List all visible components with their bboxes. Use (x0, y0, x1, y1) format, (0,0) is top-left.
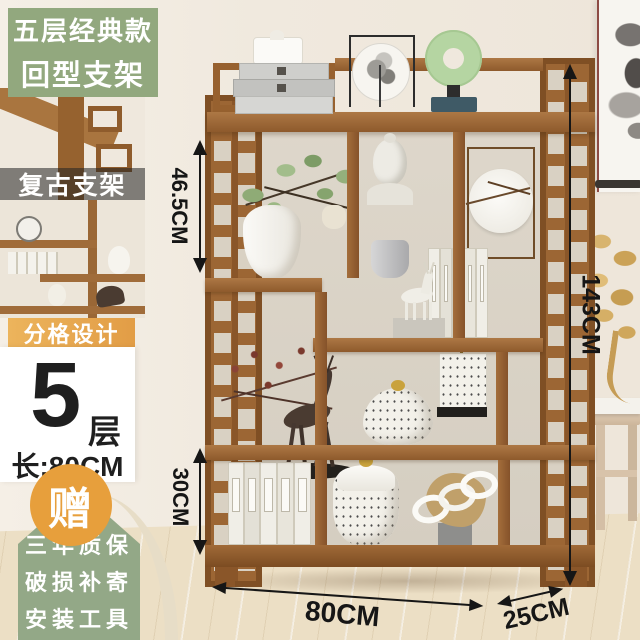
shelf-divider (315, 292, 327, 445)
storage-box (235, 96, 333, 114)
top-promo-badge: 五层经典款 回型支架 (8, 8, 158, 97)
mini-board (0, 240, 97, 248)
dim-line (199, 152, 201, 260)
dim-label-total-height: 143CM (576, 269, 605, 361)
jade-ring-hole (443, 48, 464, 69)
shelf-divider (498, 460, 510, 545)
file-box-row (228, 462, 312, 545)
small-cream-vase (322, 205, 346, 229)
deer-leg (429, 302, 432, 320)
display-shelf (205, 55, 595, 587)
dim-label-lower-section: 30CM (167, 459, 193, 535)
arrowhead-down (563, 571, 577, 586)
dim-label-width: 80CM (304, 595, 377, 633)
gift-circle-badge: 赠 (30, 464, 112, 546)
buddha-shoulders (367, 183, 413, 205)
shelf-divider (315, 460, 327, 545)
white-textured-vase (243, 205, 301, 278)
gift-benefit: 安装工具 (25, 602, 133, 634)
mini-board (40, 274, 145, 282)
shelf-board (205, 445, 595, 460)
mini-vase (48, 284, 66, 306)
tissue-box (253, 37, 303, 65)
jade-ring-base (431, 97, 477, 112)
file-box (294, 462, 311, 545)
retro-label-strip: 复古支架 (0, 168, 145, 200)
buddha-head (373, 139, 407, 185)
gift-benefit: 破损补寄 (25, 565, 133, 597)
fan-tassel (379, 65, 381, 107)
dim-line (199, 460, 201, 542)
mini-books (8, 252, 58, 274)
file-box (260, 462, 277, 545)
file-box (228, 462, 244, 545)
mini-deer (94, 284, 125, 309)
shelf-top-board (207, 112, 595, 132)
fan-circle (352, 43, 410, 101)
deer-plinth (393, 318, 445, 338)
lattice-hole (88, 106, 122, 132)
box-base (437, 407, 487, 417)
gift-character: 赠 (48, 473, 94, 537)
white-deer-figurine (391, 260, 447, 338)
shelf-divider (453, 132, 465, 338)
console-leg (596, 425, 605, 530)
abstract-wood-sculpture (408, 473, 496, 545)
deer-leg (405, 302, 408, 320)
book-spine (464, 248, 476, 338)
bronze-deer-figurine (261, 347, 357, 481)
spec-panel: 5 层 长:80CM (0, 347, 135, 482)
ink-scroll-painting (597, 0, 640, 192)
dim-line (569, 76, 571, 573)
jar-knob (391, 380, 405, 391)
layer-count: 5 (30, 349, 81, 441)
buddha-bust (363, 133, 417, 278)
shelf-divider (347, 132, 359, 278)
file-box (277, 462, 294, 545)
jar-lid (337, 465, 395, 491)
mini-vase (108, 246, 130, 274)
tissue-puff (270, 30, 284, 40)
shelf-board (313, 338, 543, 352)
box-label (277, 67, 286, 75)
book-spine (476, 248, 488, 338)
promo-line1: 五层经典款 (13, 11, 153, 48)
storage-box-stack (233, 63, 333, 112)
product-image: 46.5CM 30CM 143CM 80CM 25CM 复古支架 (0, 0, 640, 640)
design-feature-badge: 分格设计 (8, 318, 135, 347)
dim-label-upper-section: 46.5CM (166, 160, 192, 252)
box-label (277, 84, 286, 92)
console-stretcher (596, 470, 637, 477)
round-fan-display-stand (343, 35, 417, 112)
promo-line2: 回型支架 (21, 52, 145, 94)
buddha-topknot (384, 133, 396, 143)
deer-antler (423, 262, 429, 274)
shelf-bottom-board (205, 545, 595, 567)
scroll-rod (595, 180, 640, 188)
calligraphy-ginger-jar (333, 467, 399, 545)
retro-label: 复古支架 (18, 166, 126, 202)
arrowhead-down (193, 540, 207, 555)
jade-ring-sculpture (423, 30, 485, 112)
shelf-board (205, 278, 322, 292)
thumbnail-shelf-scene (0, 200, 145, 318)
shelf-divider (496, 352, 508, 445)
file-box (244, 462, 260, 545)
arrowhead-down (193, 258, 207, 273)
mini-board (0, 306, 145, 314)
dim-arrow-lower-section (192, 448, 208, 554)
deer-leg (413, 302, 416, 320)
ink-art (603, 6, 640, 166)
arrowhead-right (469, 599, 484, 612)
calligraphy-panel (439, 353, 487, 409)
mini-clock (16, 216, 42, 242)
dim-arrow-upper-section (192, 140, 208, 272)
deer-leg (423, 302, 426, 320)
